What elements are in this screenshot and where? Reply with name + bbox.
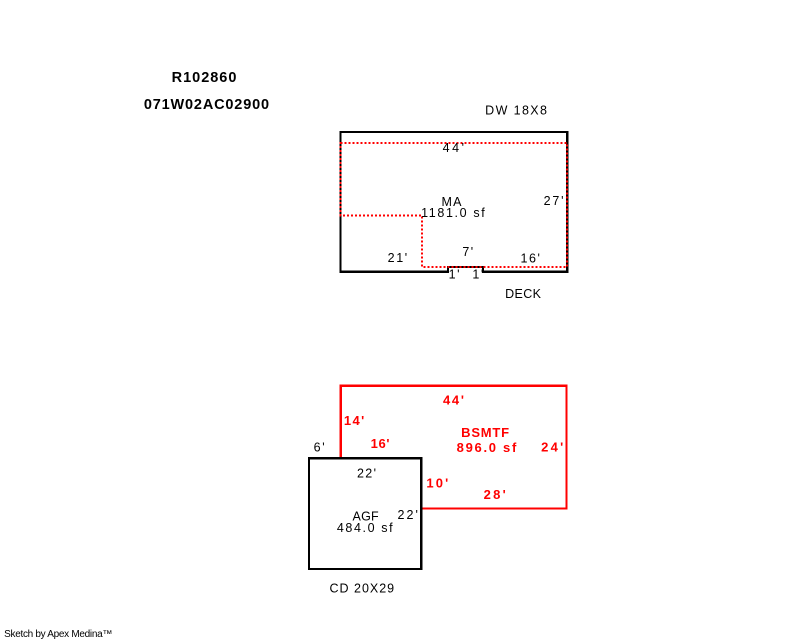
svg-text:CD 20X29: CD 20X29 — [330, 582, 396, 596]
svg-text:24': 24' — [541, 440, 565, 455]
svg-text:22': 22' — [398, 508, 420, 522]
svg-text:DW 18X8: DW 18X8 — [485, 103, 548, 117]
svg-text:DECK: DECK — [505, 287, 541, 301]
svg-text:R102860: R102860 — [172, 70, 238, 86]
svg-text:16': 16' — [371, 436, 390, 451]
svg-text:896.0 sf: 896.0 sf — [457, 440, 518, 455]
svg-text:16': 16' — [520, 252, 541, 266]
svg-text:7': 7' — [462, 245, 474, 259]
svg-text:1': 1' — [472, 267, 484, 281]
svg-text:10': 10' — [426, 476, 450, 491]
svg-text:27': 27' — [544, 194, 566, 208]
svg-text:21': 21' — [388, 251, 409, 265]
svg-text:1181.0 sf: 1181.0 sf — [421, 206, 486, 220]
svg-text:BSMTF: BSMTF — [461, 425, 510, 440]
svg-text:Sketch by Apex Medina™: Sketch by Apex Medina™ — [4, 629, 112, 640]
svg-text:28': 28' — [484, 487, 508, 502]
svg-text:484.0 sf: 484.0 sf — [337, 521, 394, 535]
svg-text:14': 14' — [344, 413, 366, 428]
svg-text:44': 44' — [443, 393, 466, 408]
svg-text:071W02AC02900: 071W02AC02900 — [144, 97, 270, 113]
svg-text:44': 44' — [443, 141, 467, 155]
svg-text:1': 1' — [449, 267, 461, 281]
svg-text:22': 22' — [357, 467, 377, 481]
svg-text:6': 6' — [314, 440, 327, 454]
